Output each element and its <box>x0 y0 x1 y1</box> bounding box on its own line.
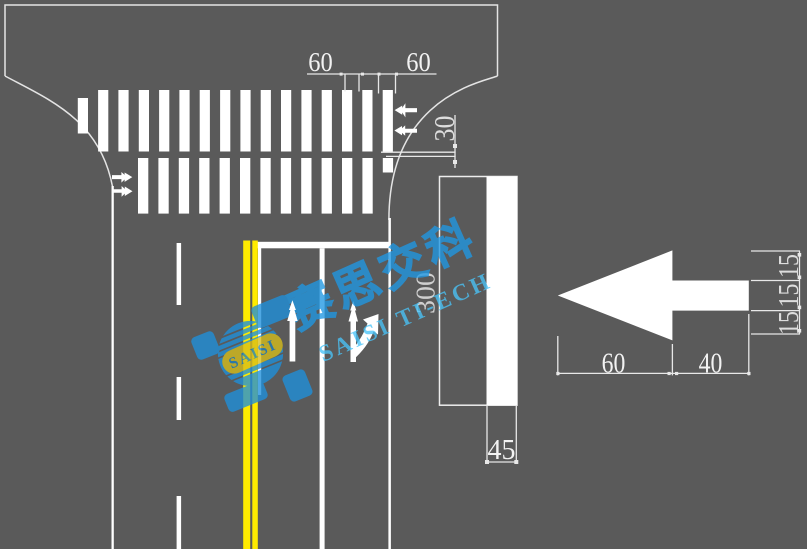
svg-text:60: 60 <box>602 347 626 379</box>
svg-text:60: 60 <box>406 47 431 77</box>
svg-text:15: 15 <box>774 284 805 308</box>
svg-text:15: 15 <box>774 311 805 335</box>
svg-text:60: 60 <box>308 47 333 77</box>
svg-text:15: 15 <box>774 254 805 278</box>
svg-text:40: 40 <box>699 347 723 379</box>
svg-text:30: 30 <box>430 116 461 142</box>
svg-text:45: 45 <box>488 434 516 466</box>
